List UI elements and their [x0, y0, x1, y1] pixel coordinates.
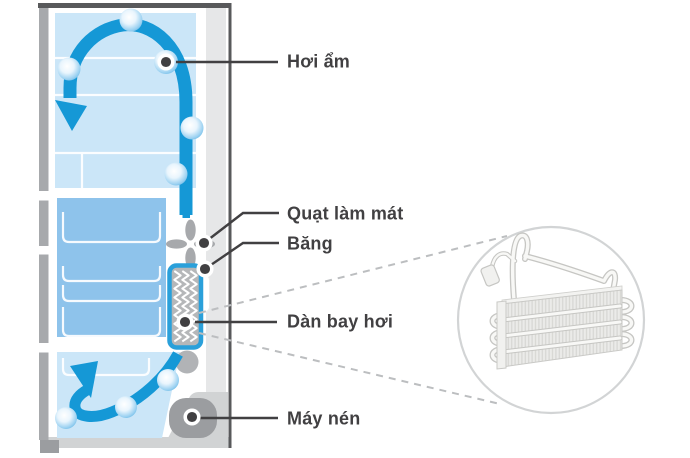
- fridge-compartment-top: [55, 13, 196, 188]
- water-droplet-icon: [58, 58, 81, 81]
- callout-dot-fan: [197, 236, 211, 250]
- refrigerator-cooling-diagram: Hơi ẩm Quạt làm mát Băng Dàn bay hơi Máy…: [0, 0, 690, 458]
- dashed-connector-bottom: [199, 333, 500, 404]
- label-compressor: Máy nén: [287, 409, 360, 430]
- callout-dot-moisture: [159, 55, 173, 69]
- fridge-bottom-band: [40, 437, 231, 448]
- magnifier-circle: [458, 227, 644, 413]
- water-droplet-icon: [157, 369, 179, 391]
- callout-dot-compressor: [185, 410, 199, 424]
- fridge-right-edge: [229, 3, 232, 448]
- water-droplet-icon: [181, 117, 204, 140]
- label-ice: Băng: [287, 234, 333, 255]
- evaporator-coil-icon: [170, 266, 202, 348]
- label-evaporator: Dàn bay hơi: [287, 312, 393, 333]
- callout-dot-evaporator: [178, 315, 192, 329]
- fridge-right-wall: [206, 8, 226, 438]
- water-droplet-icon: [120, 9, 143, 32]
- callout-dot-ice: [198, 262, 212, 276]
- water-droplet-icon: [55, 407, 77, 429]
- water-droplet-icon: [165, 163, 188, 186]
- fridge-compartment-freezer: [57, 198, 166, 337]
- label-moisture: Hơi ẩm: [287, 52, 350, 73]
- water-droplet-icon: [115, 396, 137, 418]
- fridge-foot: [40, 440, 59, 453]
- fridge-top-edge: [38, 3, 232, 8]
- label-cooling-fan: Quạt làm mát: [287, 204, 403, 225]
- end-plate: [497, 301, 506, 369]
